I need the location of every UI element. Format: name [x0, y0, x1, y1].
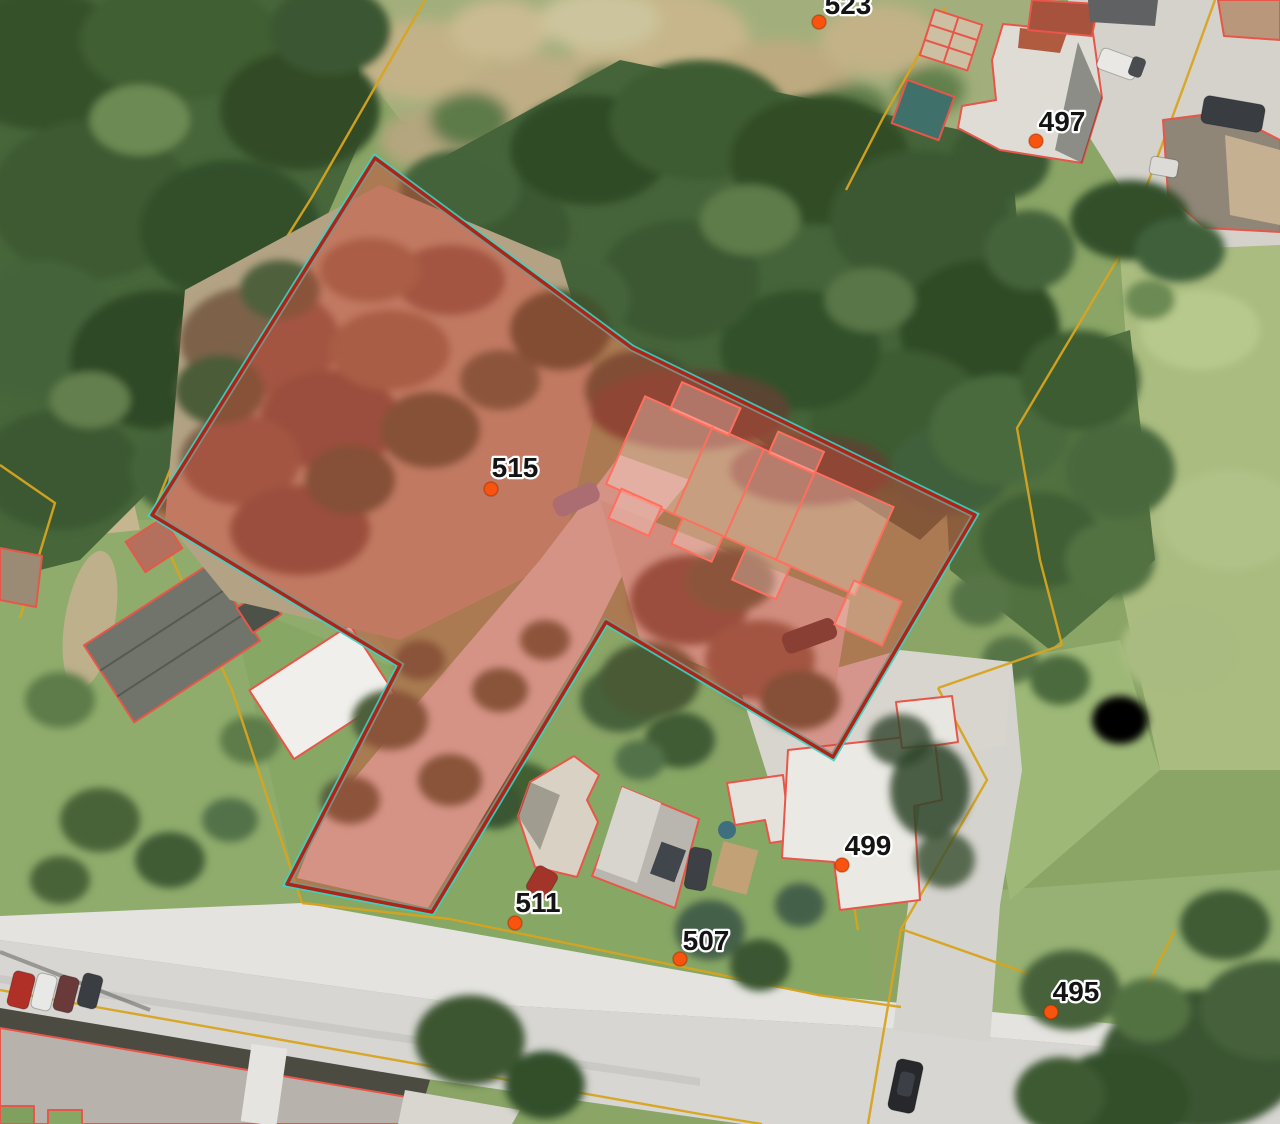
parcel-point-marker[interactable]	[1044, 1005, 1058, 1019]
parcel-address-label: 495	[1053, 976, 1100, 1007]
parcel-address-label: 511	[515, 887, 560, 918]
map-viewport[interactable]: 523497515499511507495	[0, 0, 1280, 1124]
parcel-address-label: 499	[845, 830, 892, 861]
garden-patch	[48, 1110, 82, 1124]
parcel-address-label: 507	[683, 925, 730, 956]
parcel-point-marker[interactable]	[484, 482, 498, 496]
parcel-address-label: 497	[1039, 106, 1086, 137]
parcel-point-marker[interactable]	[508, 916, 522, 930]
building-topright-corner	[1218, 0, 1280, 40]
map-canvas[interactable]: 523497515499511507495	[0, 0, 1280, 1124]
parcel-address-label: 523	[825, 0, 872, 20]
pool	[718, 821, 736, 839]
parcel-address-label: 515	[492, 452, 539, 483]
garden-patch	[0, 1106, 34, 1124]
building-roof-red	[1028, 0, 1098, 36]
building-left-edge	[0, 548, 42, 607]
